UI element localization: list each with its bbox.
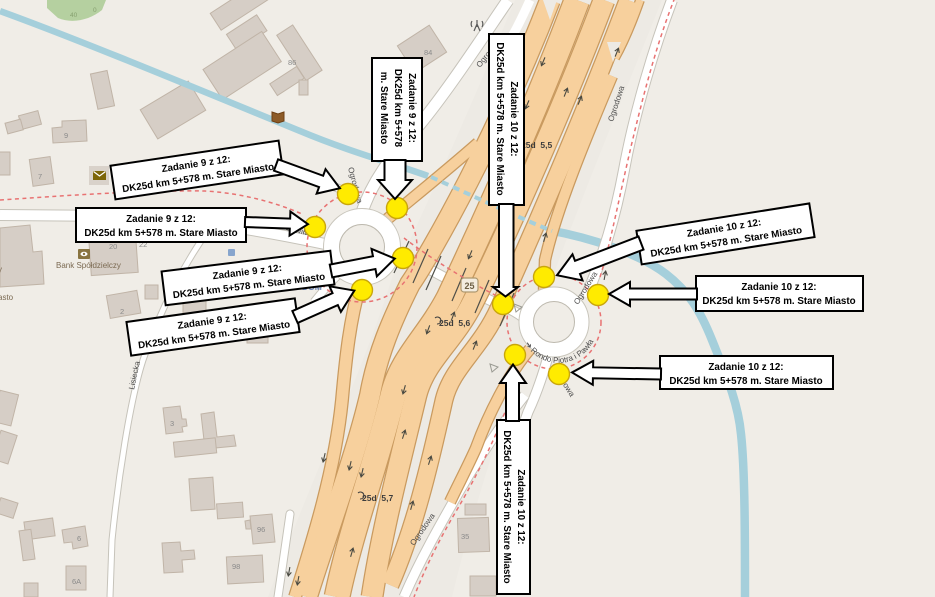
svg-text:DK25d km 5+578 m. Stare Miasto: DK25d km 5+578 m. Stare Miasto: [669, 376, 822, 387]
svg-text:35: 35: [461, 532, 469, 541]
svg-text:Zadanie 10 z 12:: Zadanie 10 z 12:: [708, 362, 783, 373]
svg-text:40: 40: [70, 12, 78, 19]
svg-text:DK25d km 5+578: DK25d km 5+578: [392, 69, 403, 148]
svg-text:asto: asto: [0, 293, 14, 302]
svg-text:86: 86: [288, 58, 296, 67]
svg-text:7: 7: [38, 172, 42, 181]
svg-text:Zadanie 9 z 12:: Zadanie 9 z 12:: [126, 214, 196, 225]
svg-text:84: 84: [424, 48, 432, 57]
svg-text:6: 6: [77, 534, 81, 543]
svg-text:Zadanie 10 z 12:: Zadanie 10 z 12:: [515, 469, 526, 544]
svg-text:DK25d km 5+578 m. Stare Miasto: DK25d km 5+578 m. Stare Miasto: [494, 42, 505, 195]
svg-text:2: 2: [120, 307, 124, 316]
svg-text:3: 3: [170, 419, 174, 428]
svg-text:20: 20: [109, 242, 117, 251]
svg-text:Zadanie 10 z 12:: Zadanie 10 z 12:: [508, 81, 519, 156]
svg-text:Zadanie 10 z 12:: Zadanie 10 z 12:: [741, 282, 816, 293]
svg-text:6A: 6A: [72, 577, 81, 586]
svg-text:m. Stare Miasto: m. Stare Miasto: [378, 72, 389, 144]
svg-text:0: 0: [93, 7, 97, 14]
svg-text:DK25d km 5+578 m. Stare Miasto: DK25d km 5+578 m. Stare Miasto: [501, 430, 512, 583]
svg-text:25d 5,5: 25d 5,5: [521, 140, 552, 150]
svg-text:98: 98: [232, 562, 240, 571]
svg-text:y: y: [0, 265, 2, 274]
svg-text:DK25d km 5+578 m. Stare Miasto: DK25d km 5+578 m. Stare Miasto: [84, 228, 237, 239]
svg-text:Bank Spółdzielczy: Bank Spółdzielczy: [56, 261, 121, 270]
svg-text:25d 5,7: 25d 5,7: [362, 493, 393, 503]
svg-text:25: 25: [464, 281, 474, 291]
svg-text:Zadanie 9 z 12:: Zadanie 9 z 12:: [406, 73, 417, 143]
svg-text:96: 96: [257, 525, 265, 534]
svg-text:9: 9: [64, 131, 68, 140]
svg-text:25d 5,6: 25d 5,6: [439, 318, 470, 328]
svg-text:DK25d km 5+578 m. Stare Miasto: DK25d km 5+578 m. Stare Miasto: [702, 296, 855, 307]
